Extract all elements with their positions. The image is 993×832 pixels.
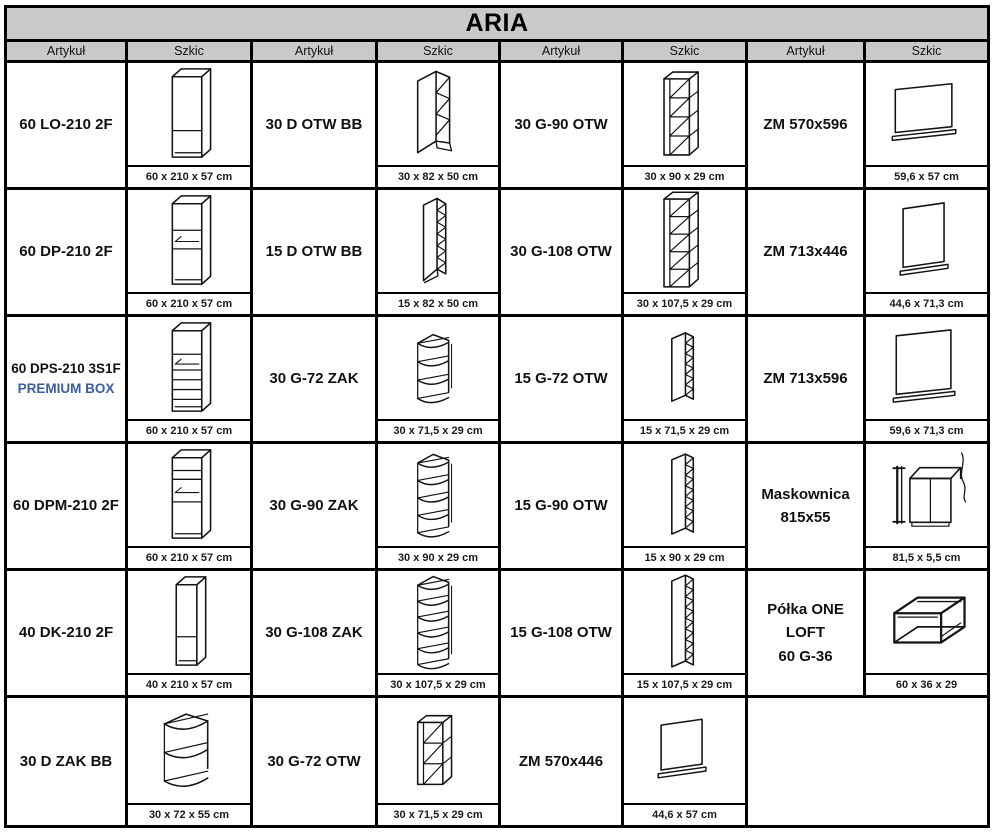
dimensions-label: 40 x 210 x 57 cm (128, 673, 250, 695)
narrow-open-shelf-sketch (624, 571, 745, 673)
dimensions-label: 15 x 71,5 x 29 cm (624, 419, 745, 441)
article-cell: 30 G-72 OTW (253, 698, 378, 825)
column-header-row: ArtykułSzkicArtykułSzkicArtykułSzkicArty… (7, 42, 987, 63)
dimensions-label: 30 x 72 x 55 cm (128, 803, 250, 825)
sketch-cell: 30 x 107,5 x 29 cm (624, 190, 748, 317)
dimensions-label: 60 x 36 x 29 (866, 673, 987, 695)
sketch-cell: 30 x 71,5 x 29 cm (378, 317, 501, 444)
base-open-shelf-sketch (378, 63, 498, 165)
dimensions-label: 30 x 107,5 x 29 cm (378, 673, 498, 695)
dimensions-label: 59,6 x 71,3 cm (866, 419, 987, 441)
dimensions-label: 60 x 210 x 57 cm (128, 419, 250, 441)
article-cell: 30 G-90 OTW (501, 63, 624, 190)
article-name: 30 D OTW BB (266, 113, 363, 136)
article-name: 15 G-72 OTW (514, 367, 607, 390)
sketch-cell: 30 x 82 x 50 cm (378, 63, 501, 190)
appliance-front-panel-sketch (624, 698, 745, 803)
appliance-front-panel-sketch (866, 317, 987, 419)
tall-oven-drawer-cabinet-sketch (128, 317, 250, 419)
column-header-szkic: Szkic (624, 42, 748, 63)
article-cell: ZM 713x596 (748, 317, 866, 444)
sketch-cell: 15 x 82 x 50 cm (378, 190, 501, 317)
article-cell: 60 DPM-210 2F (7, 444, 128, 571)
tall-cabinet-sketch (128, 63, 250, 165)
dimensions-label: 59,6 x 57 cm (866, 165, 987, 187)
dimensions-label: 15 x 82 x 50 cm (378, 292, 498, 314)
article-cell: 30 G-72 ZAK (253, 317, 378, 444)
appliance-front-panel-sketch (866, 63, 987, 165)
corner-base-shelf-sketch (128, 698, 250, 803)
sketch-cell: 81,5 x 5,5 cm (866, 444, 987, 571)
column-header-artykul: Artykuł (253, 42, 378, 63)
article-name: 60 DP-210 2F (19, 240, 112, 263)
article-name: 30 G-108 OTW (510, 240, 612, 263)
article-name: ZM 570x596 (763, 113, 847, 136)
dimensions-label: 30 x 82 x 50 cm (378, 165, 498, 187)
article-cell: Półka ONE LOFT60 G-36 (748, 571, 866, 698)
article-name: 30 G-72 OTW (267, 750, 360, 773)
premium-box-label: PREMIUM BOX (18, 379, 115, 399)
article-name: ZM 713x446 (763, 240, 847, 263)
product-table-body: 60 LO-210 2F60 x 210 x 57 cm30 D OTW BB3… (7, 63, 987, 825)
dimensions-label: 30 x 90 x 29 cm (378, 546, 498, 568)
article-name: 40 DK-210 2F (19, 621, 113, 644)
catalog-sheet: ARIA ArtykułSzkicArtykułSzkicArtykułSzki… (4, 5, 990, 828)
article-name: 30 D ZAK BB (20, 750, 113, 773)
base-open-shelf-sketch (378, 190, 498, 292)
tall-microwave-cabinet-sketch (128, 444, 250, 546)
dimensions-label: 30 x 71,5 x 29 cm (378, 803, 498, 825)
sketch-cell: 30 x 72 x 55 cm (128, 698, 253, 825)
dimensions-label: 44,6 x 71,3 cm (866, 292, 987, 314)
tall-oven-cabinet-sketch (128, 190, 250, 292)
article-name: 30 G-90 ZAK (269, 494, 358, 517)
narrow-open-shelf-sketch (624, 317, 745, 419)
article-cell: 40 DK-210 2F (7, 571, 128, 698)
sketch-cell: 44,6 x 71,3 cm (866, 190, 987, 317)
article-name: Półka ONE LOFT (751, 598, 860, 645)
dimensions-label: 81,5 x 5,5 cm (866, 546, 987, 568)
article-name: 30 G-108 ZAK (265, 621, 363, 644)
article-name: 60 G-36 (778, 645, 832, 668)
article-name: 60 DPM-210 2F (13, 494, 119, 517)
column-header-szkic: Szkic (866, 42, 987, 63)
article-name: ZM 570x446 (519, 750, 603, 773)
article-name: 30 G-72 ZAK (269, 367, 358, 390)
sketch-cell: 30 x 71,5 x 29 cm (378, 698, 501, 825)
article-cell: 30 D ZAK BB (7, 698, 128, 825)
article-cell: ZM 713x446 (748, 190, 866, 317)
column-header-szkic: Szkic (128, 42, 253, 63)
sketch-cell: 15 x 90 x 29 cm (624, 444, 748, 571)
article-cell: 60 DPS-210 3S1FPREMIUM BOX (7, 317, 128, 444)
dimensions-label: 30 x 107,5 x 29 cm (624, 292, 745, 314)
article-cell: 30 G-90 ZAK (253, 444, 378, 571)
article-name: 15 D OTW BB (266, 240, 363, 263)
sketch-cell: 15 x 107,5 x 29 cm (624, 571, 748, 698)
cover-strip-sketch (866, 444, 987, 546)
corner-shelf-sketch (378, 571, 498, 673)
sketch-cell: 30 x 107,5 x 29 cm (378, 571, 501, 698)
corner-shelf-sketch (378, 317, 498, 419)
sketch-cell: 60 x 36 x 29 (866, 571, 987, 698)
article-name: 30 G-90 OTW (514, 113, 607, 136)
column-header-artykul: Artykuł (501, 42, 624, 63)
article-cell: 15 G-108 OTW (501, 571, 624, 698)
appliance-front-panel-sketch (866, 190, 987, 292)
dimensions-label: 60 x 210 x 57 cm (128, 165, 250, 187)
article-name: ZM 713x596 (763, 367, 847, 390)
sketch-cell: 60 x 210 x 57 cm (128, 317, 253, 444)
empty-cell (866, 698, 987, 825)
tall-cabinet-sketch (128, 571, 250, 673)
article-cell: 15 G-90 OTW (501, 444, 624, 571)
sketch-cell: 59,6 x 57 cm (866, 63, 987, 190)
article-name: 60 DPS-210 3S1F (11, 359, 121, 379)
article-name: Maskownica (761, 483, 849, 506)
empty-cell (748, 698, 866, 825)
sketch-cell: 59,6 x 71,3 cm (866, 317, 987, 444)
column-header-szkic: Szkic (378, 42, 501, 63)
sketch-cell: 30 x 90 x 29 cm (378, 444, 501, 571)
narrow-open-shelf-sketch (624, 444, 745, 546)
article-name: 15 G-108 OTW (510, 621, 612, 644)
article-cell: 30 G-108 OTW (501, 190, 624, 317)
catalog-title: ARIA (7, 8, 987, 42)
dimensions-label: 30 x 71,5 x 29 cm (378, 419, 498, 441)
article-cell: 30 D OTW BB (253, 63, 378, 190)
article-cell: Maskownica815x55 (748, 444, 866, 571)
sketch-cell: 60 x 210 x 57 cm (128, 63, 253, 190)
dimensions-label: 60 x 210 x 57 cm (128, 546, 250, 568)
article-cell: 15 D OTW BB (253, 190, 378, 317)
corner-shelf-sketch (378, 444, 498, 546)
sketch-cell: 40 x 210 x 57 cm (128, 571, 253, 698)
sketch-cell: 44,6 x 57 cm (624, 698, 748, 825)
metal-frame-shelf-sketch (866, 571, 987, 673)
column-header-artykul: Artykuł (748, 42, 866, 63)
dimensions-label: 15 x 107,5 x 29 cm (624, 673, 745, 695)
wall-open-shelf-sketch (624, 190, 745, 292)
article-name: 60 LO-210 2F (19, 113, 112, 136)
dimensions-label: 44,6 x 57 cm (624, 803, 745, 825)
article-name: 15 G-90 OTW (514, 494, 607, 517)
article-cell: ZM 570x596 (748, 63, 866, 190)
dimensions-label: 30 x 90 x 29 cm (624, 165, 745, 187)
sketch-cell: 30 x 90 x 29 cm (624, 63, 748, 190)
column-header-artykul: Artykuł (7, 42, 128, 63)
wall-open-shelf-sketch (624, 63, 745, 165)
sketch-cell: 15 x 71,5 x 29 cm (624, 317, 748, 444)
article-cell: 15 G-72 OTW (501, 317, 624, 444)
sketch-cell: 60 x 210 x 57 cm (128, 444, 253, 571)
article-name: 815x55 (780, 506, 830, 529)
article-cell: 60 LO-210 2F (7, 63, 128, 190)
article-cell: 60 DP-210 2F (7, 190, 128, 317)
wall-open-shelf-sketch (378, 698, 498, 803)
article-cell: ZM 570x446 (501, 698, 624, 825)
dimensions-label: 15 x 90 x 29 cm (624, 546, 745, 568)
dimensions-label: 60 x 210 x 57 cm (128, 292, 250, 314)
article-cell: 30 G-108 ZAK (253, 571, 378, 698)
sketch-cell: 60 x 210 x 57 cm (128, 190, 253, 317)
